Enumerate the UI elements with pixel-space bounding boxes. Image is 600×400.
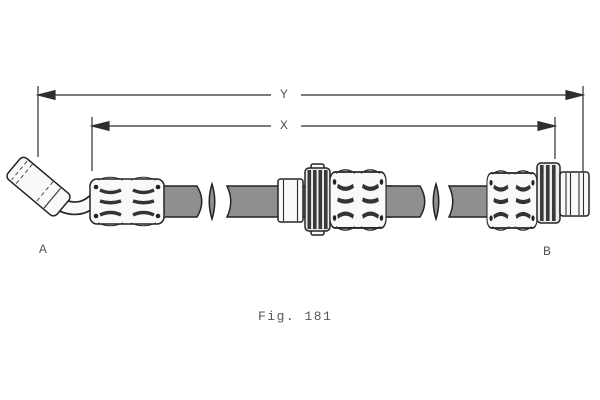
end-b-label: B (543, 245, 552, 258)
crimp-ferrule-mid (330, 170, 386, 230)
fitting-b-body (560, 172, 589, 216)
arrowhead-left-icon (92, 122, 109, 131)
arrowhead-right-icon (566, 91, 583, 100)
fitting-b-sleeve (560, 172, 589, 216)
mount-collar (278, 179, 303, 222)
ring-band (313, 170, 317, 229)
end-a-label: A (39, 243, 48, 256)
fitting-b-nut (537, 163, 560, 223)
crimp-ferrule-right (487, 171, 537, 230)
nut-band (540, 165, 544, 221)
dimension-x (92, 117, 555, 171)
collar-body (278, 179, 303, 222)
fitting-a-cylinder (5, 155, 72, 218)
figure-canvas: Y X A B Fig. 181 (0, 0, 600, 400)
grooved-ring-mid (305, 164, 330, 235)
crimp-ferrule-left (90, 177, 164, 226)
arrowhead-left-icon (38, 91, 55, 100)
ring-band (319, 170, 323, 229)
nut-band (552, 165, 556, 221)
hose-segment (227, 186, 280, 217)
dimension-y-label: Y (280, 88, 289, 101)
fitting-a (5, 155, 72, 218)
hose-break-icon (433, 184, 439, 219)
figure-caption: Fig. 181 (258, 310, 332, 324)
hose-segment (449, 186, 492, 217)
ring-band (308, 170, 312, 229)
hose-segment (163, 186, 202, 217)
nut-band (546, 165, 550, 221)
dimension-x-label: X (280, 119, 289, 132)
arrowhead-right-icon (538, 122, 555, 131)
hose-break-icon (209, 184, 215, 219)
ring-band (324, 170, 328, 229)
hose-segment (385, 186, 425, 217)
brake-hose-diagram (0, 0, 600, 400)
